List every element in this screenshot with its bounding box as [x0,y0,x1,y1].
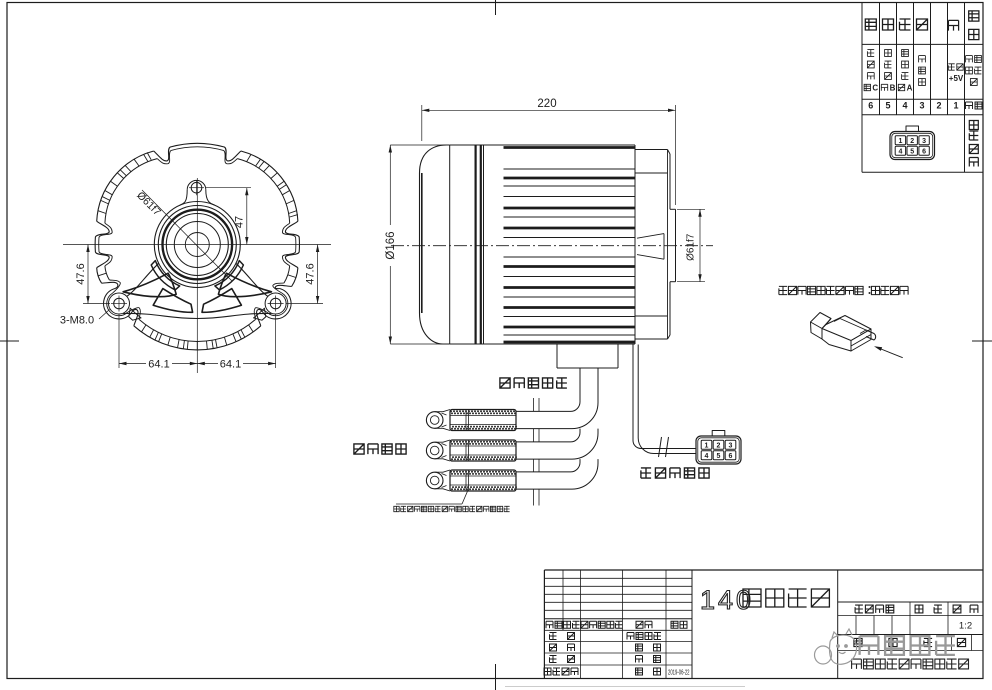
svg-text:3: 3 [919,101,924,111]
svg-text:A: A [907,84,913,93]
svg-text:220: 220 [537,98,556,110]
svg-text:2: 2 [717,442,721,449]
svg-text:64.1: 64.1 [220,359,241,371]
svg-text:B: B [890,84,896,93]
svg-text:4: 4 [705,453,709,460]
svg-text:3-M8.0: 3-M8.0 [60,315,94,327]
svg-text:47: 47 [234,216,246,228]
svg-text:2: 2 [936,101,941,111]
svg-text:4: 4 [902,101,907,111]
svg-text:3: 3 [922,138,926,145]
svg-text:3: 3 [729,442,733,449]
svg-text:5: 5 [910,148,914,155]
svg-text:Ø166: Ø166 [385,231,397,259]
svg-text:1: 1 [898,138,902,145]
svg-text:64.1: 64.1 [148,359,169,371]
svg-text:1: 1 [953,101,958,111]
svg-text:Ø61f7: Ø61f7 [686,233,697,261]
svg-text:6: 6 [868,101,873,111]
svg-text:1:2: 1:2 [959,621,972,632]
svg-text:5: 5 [717,453,721,460]
svg-text:47.6: 47.6 [75,263,87,284]
svg-text:6: 6 [922,148,926,155]
svg-text:1: 1 [705,442,709,449]
svg-text:+5V: +5V [949,74,964,83]
svg-text:2: 2 [910,138,914,145]
svg-text:2019-06-22: 2019-06-22 [668,670,690,677]
svg-text:47.6: 47.6 [305,263,317,284]
svg-text:5: 5 [885,101,890,111]
svg-text:C: C [872,84,878,93]
svg-text:4: 4 [898,148,902,155]
svg-text:6: 6 [729,453,733,460]
